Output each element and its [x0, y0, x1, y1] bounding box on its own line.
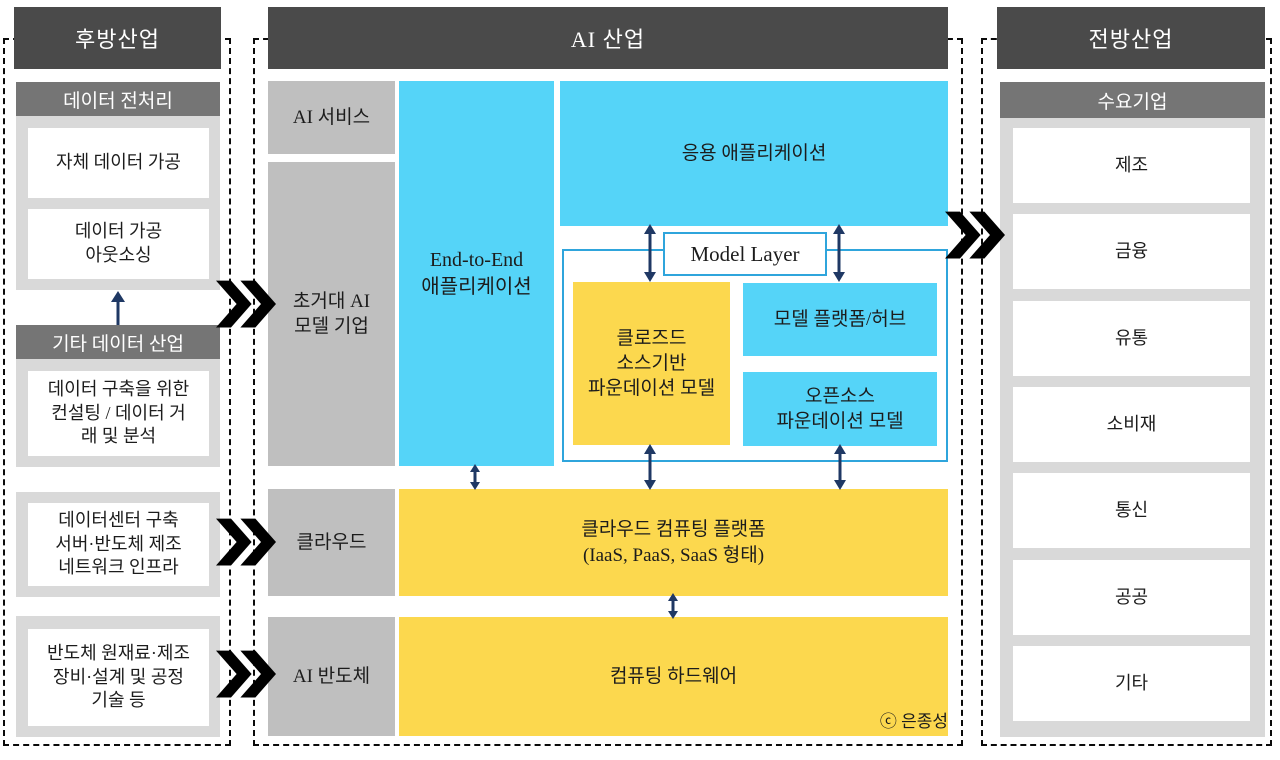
box-closed-source-model: 클로즈드 소스기반 파운데이션 모델: [573, 282, 730, 445]
box-semicon-materials: 반도체 원재료·제조 장비·설계 및 공정 기술 등: [28, 629, 209, 726]
ai-industry-value-chain-diagram: 후방산업 데이터 전처리 자체 데이터 가공 데이터 가공 아웃소싱 기타 데이…: [0, 0, 1280, 760]
chevron-backward-to-ai-icon: [216, 279, 276, 329]
box-cloud-platform: 클라우드 컴퓨팅 플랫폼 (IaaS, PaaS, SaaS 형태): [399, 489, 948, 596]
arrow-open-model-to-cloud-icon: [832, 444, 848, 490]
industry-item-others: 기타: [1013, 646, 1250, 721]
up-arrow-icon: [110, 291, 126, 325]
box-open-source-model: 오픈소스 파운데이션 모델: [743, 372, 937, 446]
box-inhouse-data-processing: 자체 데이터 가공: [28, 128, 209, 198]
model-layer-label-text: Model Layer: [690, 242, 799, 267]
arrow-cloud-to-hardware-icon: [665, 593, 681, 619]
industry-item-consumer-goods: 소비재: [1013, 387, 1250, 462]
box-data-consulting: 데이터 구축을 위한 컨설팅 / 데이터 거 래 및 분석: [28, 371, 209, 456]
arrow-app-to-platform-hub-icon: [831, 224, 847, 282]
box-datacenter-infra: 데이터센터 구축 서버·반도체 제조 네트워크 인프라: [28, 503, 209, 586]
demand-companies-label: 수요기업: [1098, 87, 1168, 114]
label-ai-semiconductor: AI 반도체: [268, 617, 395, 736]
industry-item-manufacturing: 제조: [1013, 128, 1250, 203]
other-data-header-label: 기타 데이터 산업: [52, 329, 184, 356]
preprocessing-header-label: 데이터 전처리: [63, 86, 173, 113]
arrow-closed-model-to-cloud-icon: [642, 444, 658, 490]
box-data-processing-outsourcing: 데이터 가공 아웃소싱: [28, 209, 209, 279]
backward-title-label: 후방산업: [75, 22, 160, 54]
model-layer-label: Model Layer: [663, 232, 827, 276]
industry-item-distribution: 유통: [1013, 301, 1250, 376]
chevron-ai-to-forward-icon: [945, 210, 1005, 260]
computing-hardware-label: 컴퓨팅 하드웨어: [610, 664, 737, 689]
chevron-materials-to-semicon-icon: [216, 649, 276, 699]
label-ai-service: AI 서비스: [268, 81, 395, 154]
forward-title-label: 전방산업: [1089, 22, 1174, 54]
demand-companies-header: 수요기업: [1000, 82, 1265, 118]
credit-text: ⓒ 은종성: [830, 707, 948, 733]
label-hyperscale-ai: 초거대 AI 모델 기업: [268, 162, 395, 466]
other-data-header: 기타 데이터 산업: [16, 325, 220, 359]
forward-title: 전방산업: [997, 7, 1265, 69]
chevron-infra-to-cloud-icon: [216, 517, 276, 567]
arrow-app-to-closed-model-icon: [642, 224, 658, 282]
box-application: 응용 애플리케이션: [560, 81, 948, 226]
box-end-to-end-application: End-to-End 애플리케이션: [399, 81, 554, 466]
industry-item-telecom: 통신: [1013, 473, 1250, 548]
ai-title: AI 산업: [268, 7, 948, 69]
arrow-endtoend-to-cloud-icon: [467, 464, 483, 490]
industry-item-public: 공공: [1013, 560, 1250, 635]
backward-title: 후방산업: [14, 7, 221, 69]
credit-label: ⓒ 은종성: [880, 712, 948, 731]
ai-title-label: AI 산업: [571, 22, 645, 54]
industry-item-finance: 금융: [1013, 214, 1250, 289]
preprocessing-header: 데이터 전처리: [16, 82, 220, 116]
label-cloud: 클라우드: [268, 489, 395, 596]
box-model-platform-hub: 모델 플랫폼/허브: [743, 283, 937, 356]
